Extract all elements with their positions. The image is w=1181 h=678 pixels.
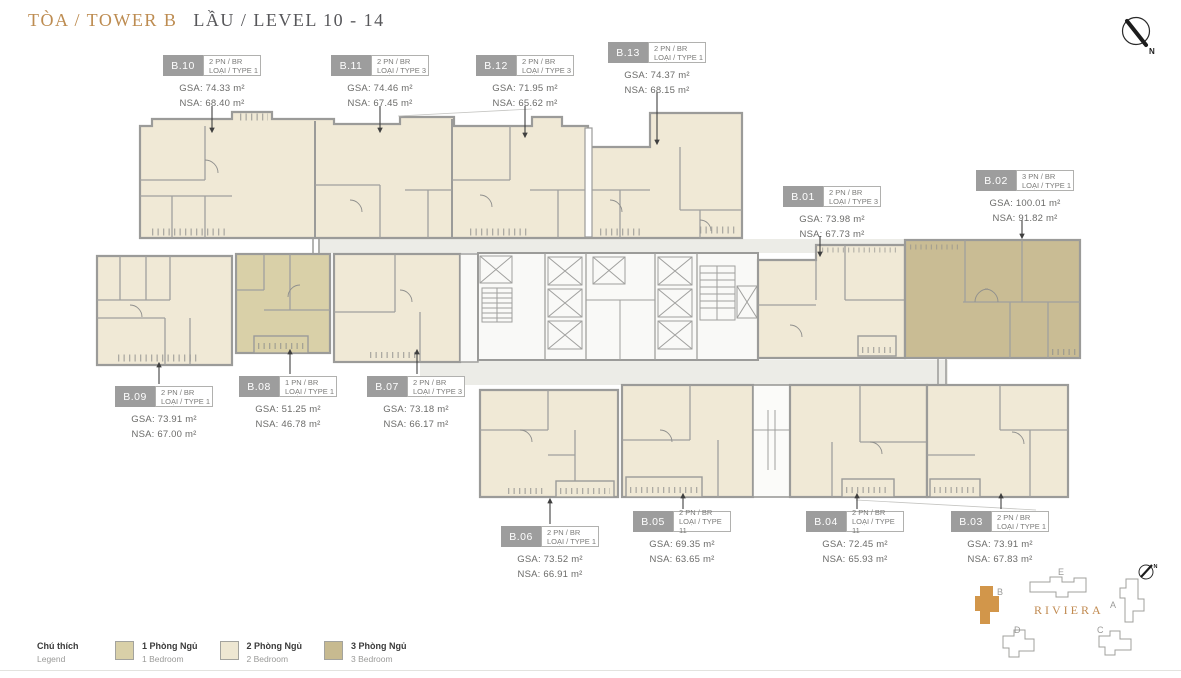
unit-gsa: GSA: 73.91 m² [920, 539, 1080, 550]
unit-type-line1: 2 PN / BR [377, 57, 428, 66]
unit-B06-plan [480, 390, 618, 497]
page-title: TÒA / TOWER B LẦU / LEVEL 10 - 14 [28, 10, 385, 31]
minimap-project-name: RIVIERA [1034, 603, 1104, 618]
unit-type-box: 2 PN / BR LOẠI / TYPE 1 [203, 55, 261, 76]
unit-label-B07: B.07 2 PN / BR LOẠI / TYPE 3 GSA: 73.18 … [336, 376, 496, 430]
unit-B07-plan [334, 254, 460, 362]
unit-nsa: NSA: 67.83 m² [920, 554, 1080, 565]
legend-heading-vi: Chú thích [37, 641, 93, 651]
unit-label-B04: B.04 2 PN / BR LOẠI / TYPE 11 GSA: 72.45… [775, 511, 935, 565]
unit-type-box: 2 PN / BR LOẠI / TYPE 3 [371, 55, 429, 76]
unit-type-line2: LOẠI / TYPE 3 [829, 197, 880, 206]
minimap-building-A [1120, 579, 1144, 622]
unit-type-box: 1 PN / BR LOẠI / TYPE 1 [279, 376, 337, 397]
minimap-building-B [975, 586, 999, 624]
unit-id-badge: B.03 [951, 511, 991, 532]
north-compass-icon: N [1123, 18, 1156, 57]
footer-divider [0, 670, 1181, 671]
legend: Chú thích Legend 1 Phòng Ngủ 1 Bedroom 2… [37, 641, 407, 664]
unit-type-box: 2 PN / BR LOẠI / TYPE 11 [846, 511, 904, 532]
unit-type-box: 2 PN / BR LOẠI / TYPE 1 [991, 511, 1049, 532]
unit-type-box: 2 PN / BR LOẠI / TYPE 1 [155, 386, 213, 407]
unit-B03-plan [927, 385, 1068, 497]
legend-swatch-2br [220, 641, 239, 660]
unit-B08-plan [236, 254, 330, 353]
unit-label-B01: B.01 2 PN / BR LOẠI / TYPE 3 GSA: 73.98 … [752, 186, 912, 240]
unit-nsa: NSA: 67.73 m² [752, 229, 912, 240]
unit-id-badge: B.12 [476, 55, 516, 76]
minimap-building-E [1030, 577, 1086, 597]
unit-label-row: B.13 2 PN / BR LOẠI / TYPE 1 [577, 42, 737, 63]
unit-type-box: 2 PN / BR LOẠI / TYPE 1 [541, 526, 599, 547]
legend-item-1br: 1 Phòng Ngủ 1 Bedroom [115, 641, 198, 664]
unit-nsa: NSA: 65.93 m² [775, 554, 935, 565]
unit-nsa: NSA: 67.45 m² [300, 98, 460, 109]
minimap-label-E: E [1058, 567, 1064, 577]
unit-label-row: B.02 3 PN / BR LOẠI / TYPE 1 [945, 170, 1105, 191]
unit-label-B05: B.05 2 PN / BR LOẠI / TYPE 11 GSA: 69.35… [602, 511, 762, 565]
unit-id-badge: B.08 [239, 376, 279, 397]
minimap-compass-icon: N [1139, 564, 1158, 579]
unit-label-row: B.11 2 PN / BR LOẠI / TYPE 3 [300, 55, 460, 76]
legend-2br-vi: 2 Phòng Ngủ [247, 641, 303, 651]
unit-label-row: B.03 2 PN / BR LOẠI / TYPE 1 [920, 511, 1080, 532]
unit-label-B11: B.11 2 PN / BR LOẠI / TYPE 3 GSA: 74.46 … [300, 55, 460, 109]
unit-B01-plan [758, 245, 905, 358]
unit-type-line1: 2 PN / BR [654, 44, 705, 53]
minimap-label-C: C [1097, 625, 1104, 635]
unit-type-line1: 2 PN / BR [829, 188, 880, 197]
unit-type-line1: 2 PN / BR [547, 528, 598, 537]
unit-type-box: 2 PN / BR LOẠI / TYPE 3 [823, 186, 881, 207]
unit-label-row: B.01 2 PN / BR LOẠI / TYPE 3 [752, 186, 912, 207]
level-title: LẦU / LEVEL 10 - 14 [193, 10, 384, 31]
legend-1br-en: 1 Bedroom [142, 654, 198, 664]
unit-type-line2: LOẠI / TYPE 1 [285, 387, 336, 396]
unit-id-badge: B.06 [501, 526, 541, 547]
unit-nsa: NSA: 68.40 m² [132, 98, 292, 109]
unit-gsa: GSA: 74.37 m² [577, 70, 737, 81]
legend-heading-en: Legend [37, 654, 93, 664]
unit-type-line2: LOẠI / TYPE 1 [997, 522, 1048, 531]
unit-type-line2: LOẠI / TYPE 1 [1022, 181, 1073, 190]
unit-type-box: 2 PN / BR LOẠI / TYPE 3 [516, 55, 574, 76]
unit-type-line1: 2 PN / BR [522, 57, 573, 66]
unit-nsa: NSA: 67.00 m² [84, 429, 244, 440]
bottom-wing-connector [753, 385, 790, 497]
unit-label-row: B.07 2 PN / BR LOẠI / TYPE 3 [336, 376, 496, 397]
unit-type-line1: 2 PN / BR [679, 508, 730, 517]
compass-n-label: N [1149, 47, 1155, 56]
unit-id-badge: B.05 [633, 511, 673, 532]
top-wing-units [140, 109, 742, 238]
unit-type-line2: LOẠI / TYPE 1 [654, 53, 705, 62]
unit-type-line2: LOẠI / TYPE 3 [413, 387, 464, 396]
building-core [478, 253, 758, 360]
legend-heading: Chú thích Legend [37, 641, 93, 664]
unit-type-line1: 2 PN / BR [413, 378, 464, 387]
unit-gsa: GSA: 74.46 m² [300, 83, 460, 94]
middle-right-units [758, 240, 1080, 358]
unit-id-badge: B.04 [806, 511, 846, 532]
unit-nsa: NSA: 66.17 m² [336, 419, 496, 430]
unit-id-badge: B.11 [331, 55, 371, 76]
unit-type-box: 2 PN / BR LOẠI / TYPE 3 [407, 376, 465, 397]
unit-gsa: GSA: 100.01 m² [945, 198, 1105, 209]
unit-nsa: NSA: 63.65 m² [602, 554, 762, 565]
unit-label-B13: B.13 2 PN / BR LOẠI / TYPE 1 GSA: 74.37 … [577, 42, 737, 96]
unit-type-line2: LOẠI / TYPE 1 [209, 66, 260, 75]
unit-label-B03: B.03 2 PN / BR LOẠI / TYPE 1 GSA: 73.91 … [920, 511, 1080, 565]
unit-B02-plan [905, 240, 1080, 358]
unit-B09-plan [97, 256, 232, 365]
minimap-compass-n-label: N [1154, 564, 1158, 570]
middle-left-units [97, 254, 478, 365]
unit-type-line1: 2 PN / BR [161, 388, 212, 397]
legend-swatch-3br [324, 641, 343, 660]
unit-id-badge: B.07 [367, 376, 407, 397]
unit-nsa: NSA: 68.15 m² [577, 85, 737, 96]
unit-type-box: 3 PN / BR LOẠI / TYPE 1 [1016, 170, 1074, 191]
unit-type-line2: LOẠI / TYPE 11 [679, 517, 730, 535]
minimap-label-D: D [1014, 625, 1021, 635]
legend-item-2br: 2 Phòng Ngủ 2 Bedroom [220, 641, 303, 664]
unit-gsa: GSA: 74.33 m² [132, 83, 292, 94]
minimap-label-A: A [1110, 600, 1116, 610]
legend-item-3br: 3 Phòng Ngủ 3 Bedroom [324, 641, 407, 664]
unit-type-box: 2 PN / BR LOẠI / TYPE 11 [673, 511, 731, 532]
bottom-wing-units [480, 385, 1068, 510]
legend-3br-en: 3 Bedroom [351, 654, 407, 664]
legend-3br-vi: 3 Phòng Ngủ [351, 641, 407, 651]
unit-label-B10: B.10 2 PN / BR LOẠI / TYPE 1 GSA: 74.33 … [132, 55, 292, 109]
unit-id-badge: B.13 [608, 42, 648, 63]
unit-type-line1: 3 PN / BR [1022, 172, 1073, 181]
unit-id-badge: B.10 [163, 55, 203, 76]
unit-type-line1: 2 PN / BR [209, 57, 260, 66]
unit-label-row: B.05 2 PN / BR LOẠI / TYPE 11 [602, 511, 762, 532]
unit-gsa: GSA: 73.18 m² [336, 404, 496, 415]
unit-id-badge: B.09 [115, 386, 155, 407]
unit-label-B02: B.02 3 PN / BR LOẠI / TYPE 1 GSA: 100.01… [945, 170, 1105, 224]
unit-B05-plan [622, 385, 753, 497]
unit-type-line2: LOẠI / TYPE 3 [522, 66, 573, 75]
unit-gsa: GSA: 69.35 m² [602, 539, 762, 550]
unit-gsa: GSA: 72.45 m² [775, 539, 935, 550]
tower-title: TÒA / TOWER B [28, 10, 177, 31]
unit-id-badge: B.02 [976, 170, 1016, 191]
unit-type-line2: LOẠI / TYPE 11 [852, 517, 903, 535]
unit-type-line1: 1 PN / BR [285, 378, 336, 387]
floorplan-page: N N TÒA / TOWER B LẦU / LEVEL 10 - 14 B.… [0, 0, 1181, 678]
unit-type-line2: LOẠI / TYPE 1 [547, 537, 598, 546]
legend-1br-vi: 1 Phòng Ngủ [142, 641, 198, 651]
unit-id-badge: B.01 [783, 186, 823, 207]
unit-type-box: 2 PN / BR LOẠI / TYPE 1 [648, 42, 706, 63]
unit-type-line2: LOẠI / TYPE 3 [377, 66, 428, 75]
unit-B04-plan [790, 385, 927, 497]
unit-gsa: GSA: 73.98 m² [752, 214, 912, 225]
unit-label-row: B.10 2 PN / BR LOẠI / TYPE 1 [132, 55, 292, 76]
unit-label-row: B.04 2 PN / BR LOẠI / TYPE 11 [775, 511, 935, 532]
minimap-label-B: B [997, 587, 1003, 597]
unit-nsa: NSA: 66.91 m² [470, 569, 630, 580]
unit-type-line1: 2 PN / BR [997, 513, 1048, 522]
unit-nsa: NSA: 65.62 m² [445, 98, 605, 109]
unit-type-line1: 2 PN / BR [852, 508, 903, 517]
unit-nsa: NSA: 91.82 m² [945, 213, 1105, 224]
legend-swatch-1br [115, 641, 134, 660]
legend-2br-en: 2 Bedroom [247, 654, 303, 664]
unit-type-line2: LOẠI / TYPE 1 [161, 397, 212, 406]
